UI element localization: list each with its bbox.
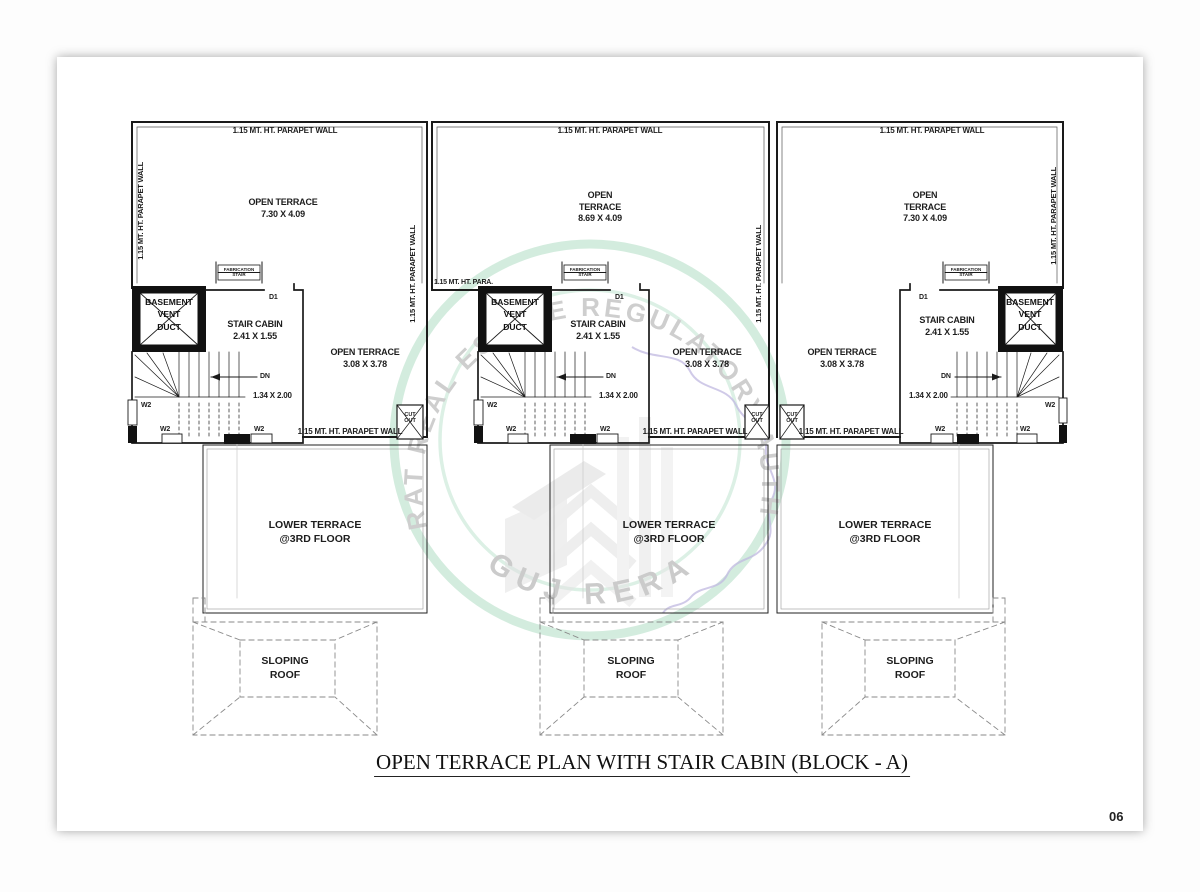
unit-1-door-label: D1: [269, 293, 278, 302]
unit-1-sloping-roof-label: SLOPING ROOF: [261, 655, 308, 682]
unit-3-lower-terrace-label: LOWER TERRACE @3RD FLOOR: [839, 519, 932, 546]
unit-3-window-label: W2: [1045, 401, 1055, 410]
unit-1-left-parapet-label: 1.15 MT. HT. PARAPET WALL: [136, 162, 145, 260]
unit-1-basement-duct-label: BASEMENT VENT DUCT: [145, 296, 193, 333]
unit-3-door-label: D1: [919, 293, 928, 302]
unit-2-stair-cabin-label: STAIR CABIN 2.41 X 1.55: [570, 319, 625, 342]
unit-3-stair-cabin-label: STAIR CABIN 2.41 X 1.55: [919, 315, 974, 338]
unit-1-stair-treads: [179, 352, 239, 397]
unit-2-door-label: D1: [615, 293, 624, 302]
unit-2-basement-duct-label: BASEMENT VENT DUCT: [491, 296, 539, 333]
unit-1-window-label: W2: [160, 425, 170, 434]
unit-3-cutout-label: CUT OUT: [786, 412, 798, 424]
unit-2-window-label: W2: [487, 401, 497, 410]
unit-1-stair-dim-label: 1.34 X 2.00: [253, 391, 292, 401]
unit-1-down-label: DN: [260, 372, 270, 381]
unit-2-open-terrace-label: OPEN TERRACE 8.69 X 4.09: [578, 190, 622, 225]
unit-2-sloping-roof-label: SLOPING ROOF: [607, 655, 654, 682]
unit-2-down-arrow: [557, 374, 566, 381]
unit-3-right-parapet-label: 1.15 MT. HT. PARAPET WALL: [1049, 167, 1058, 265]
drawing-canvas: GUJARAT REAL ESTATE REGULATORY AUTHORITY…: [0, 0, 1200, 892]
unit-2-bottom-parapet-label: 1.15 MT. HT. PARAPET WALL: [643, 427, 748, 437]
unit-3-window-label: W2: [1020, 425, 1030, 434]
unit-1-lower-terrace-label: LOWER TERRACE @3RD FLOOR: [269, 519, 362, 546]
unit-2-window-label: W2: [506, 425, 516, 434]
unit-3-basement-duct-label: BASEMENT VENT DUCT: [1006, 296, 1054, 333]
unit-3-bottom-parapet-label: 1.15 MT. HT. PARAPET WALL: [799, 427, 904, 437]
unit-1-open-terrace-label: OPEN TERRACE 7.30 X 4.09: [248, 197, 317, 220]
unit-1-right-parapet-label: 1.15 MT. HT. PARAPET WALL: [408, 225, 417, 323]
unit-1-window-label: W2: [141, 401, 151, 410]
unit-3-side-terrace-label: OPEN TERRACE 3.08 X 3.78: [807, 347, 876, 370]
unit-2-stair-treads: [525, 352, 585, 397]
unit-2-window-label: W2: [600, 425, 610, 434]
unit-1-window-label: W2: [254, 425, 264, 434]
unit-3-top-parapet-label: 1.15 MT. HT. PARAPET WALL: [880, 126, 985, 136]
unit-2-top-parapet-label: 1.15 MT. HT. PARAPET WALL: [558, 126, 663, 136]
plan-linework: [57, 57, 1143, 831]
unit-1-top-parapet-label: 1.15 MT. HT. PARAPET WALL: [233, 126, 338, 136]
unit-3-window-label: W2: [935, 425, 945, 434]
unit-1-down-arrow: [211, 374, 220, 381]
unit-1-side-terrace-label: OPEN TERRACE 3.08 X 3.78: [330, 347, 399, 370]
unit-2-lower-terrace-label: LOWER TERRACE @3RD FLOOR: [623, 519, 716, 546]
unit-3-stair-treads: [957, 352, 1017, 397]
unit-3-down-label: DN: [941, 372, 951, 381]
unit-3-sloping-roof-label: SLOPING ROOF: [886, 655, 933, 682]
unit-2-fabrication-stair-label: FABRICATION STAIR: [570, 267, 600, 278]
unit-2-left-parapet-label: 1.15 MT. HT. PARA.: [434, 278, 493, 287]
unit-2-stair-dim-label: 1.34 X 2.00: [599, 391, 638, 401]
unit-1-bottom-parapet-label: 1.15 MT. HT. PARAPET WALL: [298, 427, 403, 437]
sheet-title: OPEN TERRACE PLAN WITH STAIR CABIN (BLOC…: [374, 750, 910, 777]
unit-2-down-label: DN: [606, 372, 616, 381]
unit-1-stair-cabin-label: STAIR CABIN 2.41 X 1.55: [227, 319, 282, 342]
unit-3-fabrication-stair-label: FABRICATION STAIR: [951, 267, 981, 278]
unit-1-cutout-label: CUT OUT: [404, 412, 416, 424]
unit-3-stair-dim-label: 1.34 X 2.00: [909, 391, 948, 401]
unit-1-fabrication-stair-label: FABRICATION STAIR: [224, 267, 254, 278]
unit-2-right-parapet-label: 1.15 MT. HT. PARAPET WALL: [754, 225, 763, 323]
unit-2-side-terrace-label: OPEN TERRACE 3.08 X 3.78: [672, 347, 741, 370]
page-number: 06: [1109, 809, 1123, 824]
unit-2-cutout-label: CUT OUT: [751, 412, 763, 424]
unit-3-open-terrace-label: OPEN TERRACE 7.30 X 4.09: [903, 190, 947, 225]
unit-3-down-arrow: [992, 374, 1001, 381]
drawing-sheet: GUJARAT REAL ESTATE REGULATORY AUTHORITY…: [57, 57, 1143, 831]
